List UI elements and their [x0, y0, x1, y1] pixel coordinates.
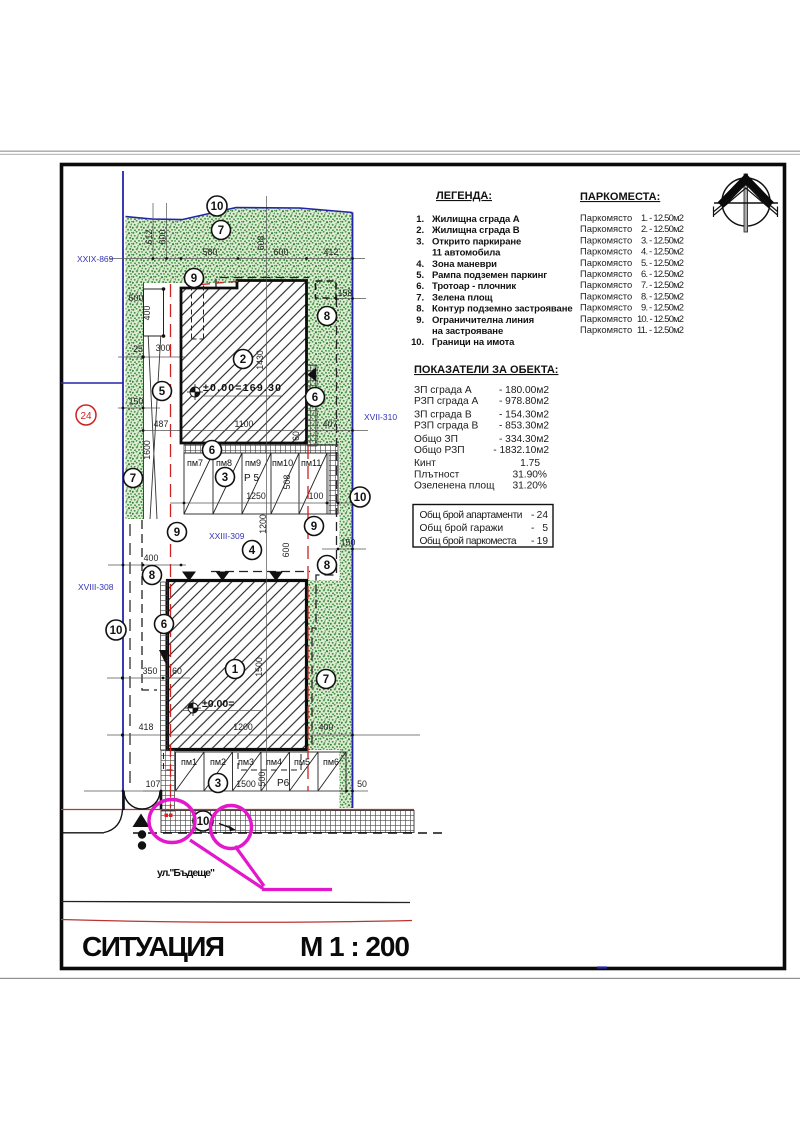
svg-text:ЛЕГЕНДА:: ЛЕГЕНДА: [436, 190, 492, 202]
svg-text:Паркомясто: Паркомясто [580, 268, 632, 279]
svg-text:М 1 : 200: М 1 : 200 [300, 931, 410, 962]
svg-text:1.75: 1.75 [520, 458, 540, 469]
svg-text:Общо РЗП: Общо РЗП [414, 444, 465, 456]
svg-text:XVII-310: XVII-310 [364, 412, 397, 422]
svg-text:1500: 1500 [236, 779, 256, 789]
svg-text:5: 5 [542, 523, 548, 534]
svg-text:400: 400 [142, 306, 152, 321]
svg-text:пм6: пм6 [323, 757, 339, 767]
svg-text:5.: 5. [416, 270, 424, 281]
svg-text:- 334.30м2: - 334.30м2 [499, 434, 549, 445]
svg-text:600: 600 [158, 230, 168, 245]
svg-text:6: 6 [209, 445, 215, 457]
svg-text:24: 24 [537, 510, 549, 521]
svg-text:580: 580 [203, 247, 218, 257]
svg-text:Рампа подземен паркинг: Рампа подземен паркинг [432, 270, 547, 281]
svg-text:Паркомясто: Паркомясто [580, 313, 632, 324]
svg-text:пм5: пм5 [294, 757, 310, 767]
svg-text:7: 7 [130, 473, 136, 485]
svg-text:5: 5 [159, 386, 166, 398]
svg-text:500: 500 [129, 293, 144, 303]
svg-text:-: - [531, 523, 534, 534]
svg-text:9: 9 [191, 273, 197, 285]
svg-text:ПОКАЗАТЕЛИ ЗА ОБЕКТА:: ПОКАЗАТЕЛИ ЗА ОБЕКТА: [414, 364, 558, 376]
svg-text:400: 400 [144, 553, 159, 563]
svg-text:19: 19 [537, 536, 549, 547]
svg-text:Общ брой гаражи: Общ брой гаражи [420, 522, 504, 534]
svg-text:Паркомясто: Паркомясто [580, 290, 632, 301]
svg-text:Паркомясто: Паркомясто [580, 302, 632, 313]
svg-text:8. - 12.50м2: 8. - 12.50м2 [641, 290, 684, 301]
svg-text:РЗП сграда В: РЗП сграда В [414, 421, 478, 432]
svg-text:пм2: пм2 [210, 757, 226, 767]
svg-text:ПАРКОМЕСТА:: ПАРКОМЕСТА: [580, 191, 660, 203]
svg-text:3. - 12.50м2: 3. - 12.50м2 [641, 234, 684, 245]
svg-text:Общ брой апартаменти: Общ брой апартаменти [420, 509, 523, 521]
svg-text:600: 600 [281, 543, 291, 558]
svg-text:Кинт: Кинт [414, 458, 436, 469]
svg-text:3: 3 [222, 472, 228, 484]
svg-text:7: 7 [218, 225, 224, 237]
svg-text:11. - 12.50м2: 11. - 12.50м2 [637, 324, 684, 335]
svg-text:9.: 9. [416, 315, 424, 326]
svg-text:3: 3 [215, 778, 221, 790]
svg-text:1: 1 [232, 664, 239, 676]
svg-text:150: 150 [129, 397, 144, 407]
svg-text:Паркомясто: Паркомясто [580, 324, 632, 335]
svg-text:150: 150 [341, 538, 356, 548]
svg-text:400: 400 [319, 722, 334, 732]
svg-text:±0.00=: ±0.00= [202, 698, 234, 710]
svg-text:1200: 1200 [258, 514, 268, 534]
svg-text:ЗП сграда А: ЗП сграда А [414, 385, 472, 396]
svg-text:612: 612 [144, 230, 154, 245]
svg-text:8.: 8. [416, 304, 424, 315]
svg-text:9: 9 [174, 527, 180, 539]
svg-text:4.: 4. [416, 259, 424, 270]
svg-text:1.: 1. [416, 214, 424, 225]
svg-text:100: 100 [309, 491, 324, 501]
svg-text:пм10: пм10 [272, 458, 293, 468]
svg-text:Жилищна сграда А: Жилищна сграда А [431, 214, 520, 225]
svg-text:Граници на имота: Граници на имота [432, 337, 515, 348]
svg-text:Паркомясто: Паркомясто [580, 279, 632, 290]
svg-text:XVIII-308: XVIII-308 [78, 582, 114, 592]
svg-text:7: 7 [323, 674, 329, 686]
svg-text:10: 10 [211, 201, 224, 213]
svg-text:5. - 12.50м2: 5. - 12.50м2 [641, 257, 684, 268]
svg-text:4: 4 [249, 545, 256, 557]
svg-text:600: 600 [274, 247, 289, 257]
svg-text:608: 608 [256, 236, 266, 251]
svg-text:XXIX-869: XXIX-869 [77, 254, 114, 264]
svg-text:пм11: пм11 [301, 458, 321, 468]
svg-text:350: 350 [143, 666, 158, 676]
svg-text:11 автомобила: 11 автомобила [432, 248, 501, 259]
svg-text:Контур подземно застрояване: Контур подземно застрояване [432, 304, 573, 315]
svg-text:Р6: Р6 [277, 778, 290, 789]
svg-text:Зона маневри: Зона маневри [432, 259, 497, 270]
svg-text:7.: 7. [416, 292, 424, 303]
svg-text:Паркомясто: Паркомясто [580, 257, 632, 268]
svg-text:412: 412 [324, 247, 339, 257]
svg-text:Зелена площ: Зелена площ [432, 292, 493, 303]
svg-text:Общо ЗП: Общо ЗП [414, 433, 458, 445]
svg-text:1200: 1200 [233, 722, 253, 732]
svg-text:10: 10 [110, 625, 123, 637]
svg-text:пм1: пм1 [181, 757, 197, 767]
svg-text:пм4: пм4 [266, 757, 282, 767]
svg-text:пм3: пм3 [238, 757, 254, 767]
svg-text:Паркомясто: Паркомясто [580, 234, 632, 245]
svg-text:РЗП сграда А: РЗП сграда А [414, 396, 478, 407]
svg-text:1430: 1430 [255, 350, 265, 370]
svg-text:XXIII-309: XXIII-309 [209, 531, 245, 541]
svg-text:10: 10 [197, 816, 210, 828]
svg-text:6. - 12.50м2: 6. - 12.50м2 [641, 268, 684, 279]
svg-text:Открито паркиране: Открито паркиране [432, 236, 521, 247]
svg-text:9. - 12.50м2: 9. - 12.50м2 [641, 302, 684, 313]
svg-text:418: 418 [139, 722, 154, 732]
svg-text:31.90%: 31.90% [512, 469, 547, 480]
svg-text:107: 107 [146, 779, 161, 789]
svg-text:24: 24 [80, 411, 92, 422]
svg-text:8: 8 [324, 560, 331, 572]
svg-text:Паркомясто: Паркомясто [580, 246, 632, 257]
svg-text:8: 8 [149, 570, 156, 582]
svg-text:пм8: пм8 [216, 458, 232, 468]
svg-text:9: 9 [311, 521, 317, 533]
svg-text:10. - 12.50м2: 10. - 12.50м2 [637, 313, 684, 324]
svg-text:Р 5: Р 5 [244, 473, 259, 484]
svg-text:1250: 1250 [246, 491, 266, 501]
svg-text:Ограничителна линия: Ограничителна линия [432, 315, 534, 326]
svg-text:пм7: пм7 [187, 458, 203, 468]
svg-text:31.20%: 31.20% [512, 481, 547, 492]
svg-text:500: 500 [257, 772, 267, 787]
svg-text:Общ брой паркоместа: Общ брой паркоместа [420, 535, 517, 547]
svg-text:2.: 2. [416, 225, 424, 236]
svg-text:407: 407 [323, 419, 338, 429]
svg-text:60: 60 [172, 666, 182, 676]
svg-text:1. - 12.50м2: 1. - 12.50м2 [641, 212, 684, 223]
svg-text:±0.00=169.30: ±0.00=169.30 [203, 382, 281, 394]
svg-text:10.: 10. [411, 337, 424, 348]
svg-text:8: 8 [324, 311, 331, 323]
svg-text:6.: 6. [416, 281, 424, 292]
svg-text:487: 487 [154, 419, 169, 429]
svg-text:1100: 1100 [235, 419, 254, 429]
svg-text:3.: 3. [416, 236, 424, 247]
svg-text:25: 25 [133, 344, 143, 354]
svg-text:60: 60 [291, 431, 301, 441]
svg-text:158: 158 [338, 288, 353, 298]
svg-text:7. - 12.50м2: 7. - 12.50м2 [641, 279, 684, 290]
svg-text:на застрояване: на застрояване [432, 326, 503, 337]
svg-text:1500: 1500 [254, 657, 264, 677]
svg-text:2: 2 [240, 354, 246, 366]
svg-text:Озеленена площ: Озеленена площ [414, 481, 495, 492]
svg-text:6: 6 [161, 619, 167, 631]
svg-text:2. - 12.50м2: 2. - 12.50м2 [641, 223, 684, 234]
svg-text:Тротоар - плочник: Тротоар - плочник [432, 281, 516, 292]
svg-text:6: 6 [312, 392, 318, 404]
svg-text:-: - [531, 510, 534, 521]
svg-text:- 1832.10м2: - 1832.10м2 [493, 445, 549, 456]
svg-text:- 180.00м2: - 180.00м2 [499, 385, 549, 396]
svg-text:- 978.80м2: - 978.80м2 [499, 396, 549, 407]
svg-text:4. - 12.50м2: 4. - 12.50м2 [641, 246, 684, 257]
svg-text:50: 50 [357, 779, 367, 789]
svg-text:пм9: пм9 [245, 458, 261, 468]
svg-text:ЗП сграда В: ЗП сграда В [414, 409, 472, 420]
svg-text:10: 10 [354, 492, 367, 504]
svg-text:Паркомясто: Паркомясто [580, 223, 632, 234]
svg-text:-: - [531, 536, 534, 547]
svg-text:- 853.30м2: - 853.30м2 [499, 421, 549, 432]
svg-text:300: 300 [156, 343, 171, 353]
svg-text:СИТУАЦИЯ: СИТУАЦИЯ [82, 931, 225, 962]
svg-text:Паркомясто: Паркомясто [580, 212, 632, 223]
svg-text:Жилищна сграда В: Жилищна сграда В [431, 225, 520, 236]
svg-text:- 154.30м2: - 154.30м2 [499, 409, 549, 420]
svg-text:ул."Бъдеще": ул."Бъдеще" [157, 867, 215, 879]
svg-text:Плътност: Плътност [414, 469, 460, 480]
svg-text:508: 508 [282, 475, 292, 490]
svg-text:1600: 1600 [142, 440, 152, 460]
